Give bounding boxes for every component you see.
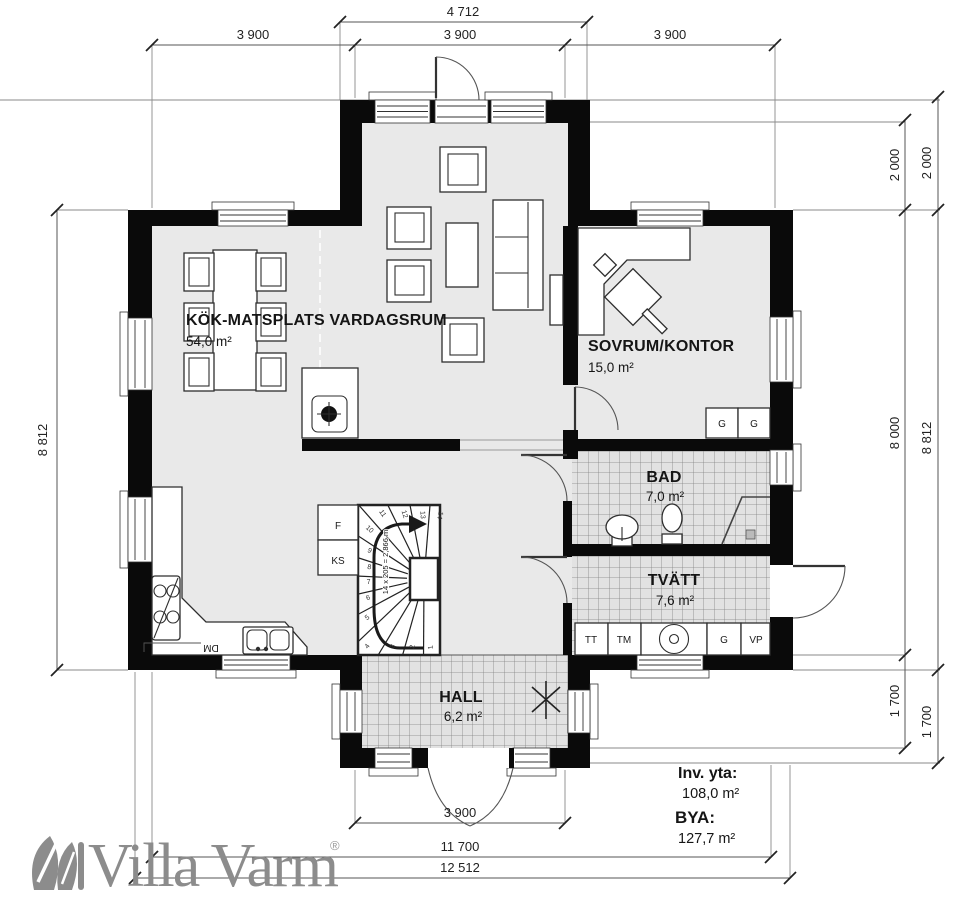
wardrobe-label: G — [720, 635, 728, 646]
laundry-exterior-door-opening — [770, 565, 793, 617]
inv-yta-label: Inv. yta: — [678, 765, 737, 782]
dim-module: 3 900 — [654, 27, 687, 42]
window-sill — [793, 444, 801, 491]
window — [375, 748, 412, 768]
room-area-bath: 7,0 m² — [646, 489, 685, 504]
stair-note: 14 x 205 = 2,866 m — [381, 530, 390, 594]
dim-right-upper-total: 2 000 — [919, 147, 934, 180]
shower-head-icon — [746, 530, 755, 539]
room-label-kitchen: KÖK-MATSPLATS VARDAGSRUM — [186, 310, 447, 329]
appliance-dishwasher: DM — [203, 642, 219, 653]
window — [128, 318, 152, 390]
bya-label: BYA: — [675, 808, 715, 827]
window-sill — [507, 768, 556, 776]
tv-bench — [550, 275, 563, 325]
room-label-bath: BAD — [646, 469, 681, 486]
terrace-door-swing — [436, 57, 479, 100]
wardrobe-label: G — [750, 419, 758, 430]
laundry-exterior-door-swing — [793, 566, 845, 618]
window — [637, 210, 703, 226]
window-sill — [369, 768, 418, 776]
dim-bottom-total: 12 512 — [440, 860, 480, 875]
window-sill — [485, 92, 552, 100]
room-area-laundry: 7,6 m² — [656, 593, 695, 608]
appliance-dryer: TT — [585, 635, 597, 646]
window-sill — [120, 491, 128, 568]
room-label-hall: HALL — [439, 689, 482, 706]
room-label-bedroom: SOVRUM/KONTOR — [588, 338, 735, 355]
kitchen-island — [302, 368, 358, 438]
machine-bench — [641, 623, 707, 655]
window-sill — [369, 92, 436, 100]
toilet-icon — [662, 504, 682, 532]
inv-yta-value: 108,0 m² — [682, 786, 739, 802]
window-sill — [590, 684, 598, 739]
stair-tread-number: 13 — [418, 511, 425, 519]
window — [770, 317, 793, 382]
dim-module: 3 900 — [237, 27, 270, 42]
room-area-bedroom: 15,0 m² — [588, 360, 634, 375]
floorplan-drawing: 1234567891011121314 14 x 205 = 2,866 m — [0, 0, 960, 911]
entrance-door-opening — [428, 748, 513, 768]
dim-left-height: 8 812 — [35, 424, 50, 457]
leaf-icon — [32, 836, 84, 890]
wardrobe-label: G — [718, 419, 726, 430]
sofa — [493, 200, 543, 310]
window — [340, 690, 362, 733]
dim-bottom-frame: 11 700 — [441, 839, 480, 854]
window — [128, 497, 152, 562]
window-sill — [216, 670, 296, 678]
appliance-heater: VP — [749, 635, 763, 646]
appliance-freezer: F — [335, 521, 341, 532]
appliance-washer: TM — [617, 635, 631, 646]
room-area-kitchen: 54,0 m² — [186, 334, 232, 349]
window-sill — [793, 311, 801, 388]
window-sill — [212, 202, 294, 210]
dim-top-overall: 4 712 — [447, 4, 480, 19]
window — [222, 655, 290, 670]
logo: Villa Varm ® — [32, 832, 340, 900]
window — [770, 450, 793, 485]
entrance-door-swing-right — [470, 768, 513, 826]
room-area-hall: 6,2 m² — [444, 709, 483, 724]
coffee-table — [446, 223, 478, 287]
dim-right-total: 8 812 — [919, 422, 934, 455]
dim-module: 3 900 — [444, 27, 477, 42]
dim-right-main: 8 000 — [887, 417, 902, 450]
window — [513, 748, 550, 768]
dim-right-upper: 2 000 — [887, 149, 902, 182]
toilet-tank — [662, 534, 682, 544]
bya-value: 127,7 m² — [678, 831, 735, 847]
window — [568, 690, 590, 733]
terrace-door — [435, 100, 488, 123]
registered-mark: ® — [330, 838, 340, 853]
window — [637, 655, 703, 670]
room-label-laundry: TVÄTT — [648, 571, 701, 589]
dim-right-lower-total: 1 700 — [919, 706, 934, 739]
brand-wordmark: Villa Varm — [88, 832, 339, 900]
stair-tread-number: 7 — [367, 579, 372, 586]
floorplan-sheet: 1234567891011121314 14 x 205 = 2,866 m — [0, 0, 960, 911]
window — [218, 210, 288, 226]
stair-newel — [410, 558, 438, 600]
area-totals: Inv. yta: 108,0 m² BYA: 127,7 m² — [675, 765, 739, 847]
window-sill — [332, 684, 340, 739]
window-sill — [631, 202, 709, 210]
window-sill — [120, 312, 128, 396]
appliance-fridge: KS — [331, 556, 345, 567]
dim-right-lower: 1 700 — [887, 685, 902, 718]
window-sill — [631, 670, 709, 678]
dim-bottom-hall: 3 900 — [444, 805, 477, 820]
